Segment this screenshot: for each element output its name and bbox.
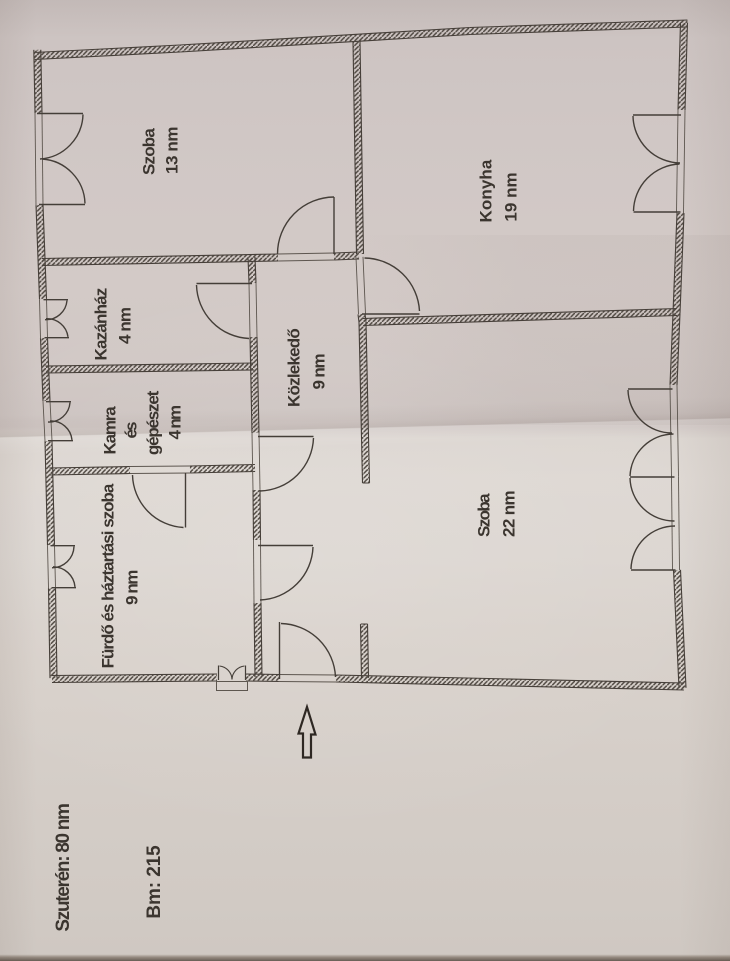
svg-text:Szuterén: 80 nm: Szuterén: 80 nm bbox=[53, 804, 74, 932]
svg-text:4 nm: 4 nm bbox=[166, 405, 185, 439]
svg-text:13 nm: 13 nm bbox=[163, 127, 182, 174]
svg-text:Szoba: Szoba bbox=[140, 128, 159, 175]
svg-text:Kazánház: Kazánház bbox=[92, 288, 111, 360]
svg-text:Szoba: Szoba bbox=[475, 493, 494, 537]
svg-text:Konyha: Konyha bbox=[477, 159, 496, 222]
svg-text:Kamra: Kamra bbox=[101, 406, 120, 455]
svg-text:19 nm: 19 nm bbox=[502, 172, 521, 221]
svg-text:Fürdő és háztartási szoba: Fürdő és háztartási szoba bbox=[99, 483, 118, 668]
svg-text:22 nm: 22 nm bbox=[500, 490, 519, 537]
svg-text:Bm: 215: Bm: 215 bbox=[144, 845, 165, 919]
svg-text:Közlekedő: Közlekedő bbox=[285, 329, 304, 407]
svg-text:9 nm: 9 nm bbox=[310, 353, 329, 389]
svg-text:és: és bbox=[122, 422, 141, 439]
svg-text:gépészet: gépészet bbox=[144, 390, 163, 455]
svg-text:9 nm: 9 nm bbox=[123, 570, 142, 605]
svg-text:4 nm: 4 nm bbox=[116, 307, 135, 344]
